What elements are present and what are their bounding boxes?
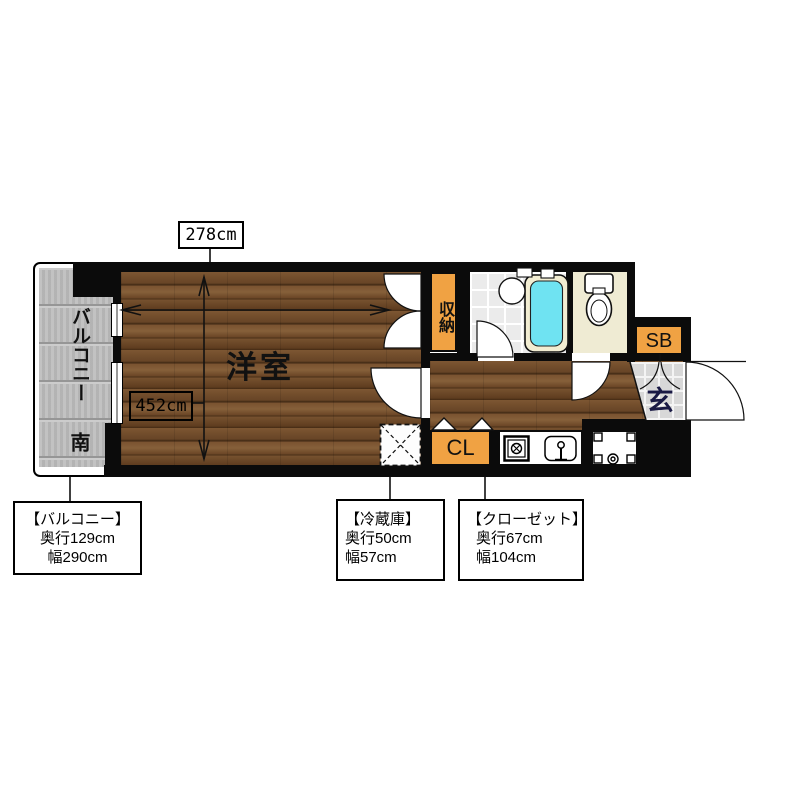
shoebox-label: SB bbox=[635, 325, 683, 358]
note-title: 【冷蔵庫】 bbox=[345, 510, 443, 529]
stove-icon bbox=[505, 437, 529, 461]
closet-label: CL bbox=[430, 430, 491, 466]
width-dimension-value: 452cm bbox=[135, 396, 186, 416]
depth-dimension-value: 278cm bbox=[185, 225, 236, 245]
dimension-box-depth: 278cm bbox=[178, 221, 244, 249]
plan-graphics bbox=[0, 0, 800, 800]
note-fridge: 【冷蔵庫】 奥行50cm 幅57cm bbox=[336, 499, 445, 581]
note-title: 【バルコニー】 bbox=[15, 510, 140, 529]
balcony-south-label: 南 bbox=[57, 427, 93, 457]
refrigerator-dashed-outline bbox=[381, 425, 421, 466]
door-swing-icon bbox=[572, 362, 610, 400]
note-width: 幅57cm bbox=[345, 548, 443, 567]
toilet-icon bbox=[585, 274, 613, 326]
floor-plan: 278cm 452cm 洋室 バルコニー 南 収納 SB CL 玄 【バルコニー… bbox=[0, 0, 800, 800]
bathtub-icon bbox=[525, 269, 568, 352]
kitchen-sink-icon bbox=[545, 437, 576, 461]
folding-door-icon bbox=[432, 418, 493, 430]
door-swing-icon bbox=[477, 321, 513, 357]
entrance-label: 玄 bbox=[643, 381, 677, 415]
note-depth: 奥行129cm bbox=[15, 529, 140, 548]
entrance-door-swing-icon bbox=[686, 362, 746, 421]
double-door-swing-icon bbox=[384, 274, 421, 348]
dimension-box-width: 452cm bbox=[129, 391, 193, 421]
note-width: 幅104cm bbox=[467, 548, 582, 567]
note-closet: 【クローゼット】 奥行67cm 幅104cm bbox=[458, 499, 584, 581]
note-depth: 奥行50cm bbox=[345, 529, 443, 548]
balcony-label: バルコニー bbox=[57, 284, 93, 424]
storage-label: 収納 bbox=[431, 287, 456, 347]
room-label: 洋室 bbox=[200, 345, 320, 383]
note-title: 【クローゼット】 bbox=[467, 510, 582, 529]
note-depth: 奥行67cm bbox=[467, 529, 582, 548]
door-swing-icon bbox=[371, 368, 421, 418]
note-balcony: 【バルコニー】 奥行129cm 幅290cm bbox=[13, 501, 142, 575]
dimension-arrow-horizontal bbox=[122, 305, 389, 315]
washer-pan-icon bbox=[594, 433, 635, 464]
note-width: 幅290cm bbox=[15, 548, 140, 567]
